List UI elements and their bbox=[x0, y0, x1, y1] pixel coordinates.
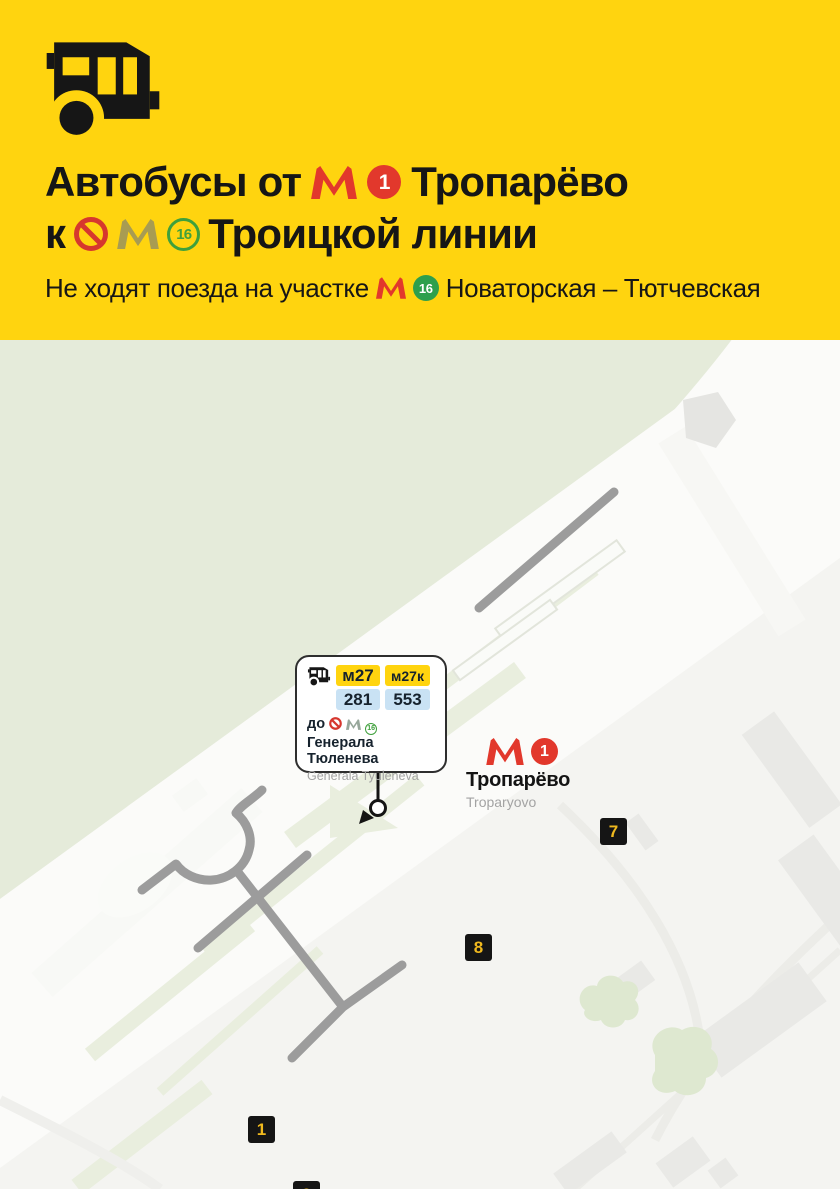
station-name: Тропарёво bbox=[466, 769, 570, 792]
route-7-8 bbox=[479, 492, 614, 608]
stop-marker-7: 7 bbox=[600, 818, 627, 845]
routes-callout: м27 м27к 281 553 до 16 Генерала Тюленева… bbox=[295, 655, 447, 773]
route-badge-281: 281 bbox=[336, 689, 380, 710]
line-16-outline-badge: 16 bbox=[167, 218, 200, 251]
line-1-badge: 1 bbox=[367, 165, 401, 199]
metro-m-olive-icon bbox=[117, 219, 159, 249]
metro-m-icon bbox=[311, 166, 357, 199]
metro-m-icon bbox=[486, 738, 524, 765]
stop-marker-1: 1 bbox=[248, 1116, 275, 1143]
title2-pre: к bbox=[45, 210, 65, 258]
subtitle-post: Новаторская – Тютчевская bbox=[446, 273, 761, 304]
dest-name: Генерала Тюленева bbox=[307, 735, 378, 768]
station-name-translit: Troparyovo bbox=[466, 794, 570, 810]
metro-m-gray-icon bbox=[346, 719, 361, 730]
poster-header: Автобусы от 1 Тропарёво к 16 Троицкой ли… bbox=[0, 0, 840, 340]
bus-icon bbox=[307, 666, 331, 686]
station-label: 1 Тропарёво Troparyovo bbox=[466, 738, 570, 810]
station-marker-circle bbox=[371, 801, 386, 816]
no-service-icon bbox=[329, 717, 342, 730]
bus-icon bbox=[43, 36, 163, 138]
title2-post: Троицкой линии bbox=[208, 210, 537, 258]
subtitle-pre: Не ходят поезда на участке bbox=[45, 273, 369, 304]
title1-post: Тропарёво bbox=[411, 158, 628, 206]
dest-prefix: до bbox=[307, 716, 325, 732]
no-service-icon bbox=[73, 216, 109, 252]
route-badge-553: 553 bbox=[385, 689, 430, 710]
poster-titles: Автобусы от 1 Тропарёво к 16 Троицкой ли… bbox=[45, 156, 760, 304]
metro-m-icon-small bbox=[376, 277, 406, 299]
stop-marker-3: 3 bbox=[293, 1181, 320, 1189]
callout-destination: до 16 Генерала Тюленева bbox=[307, 716, 436, 768]
title-line-1: Автобусы от 1 Тропарёво bbox=[45, 156, 760, 208]
subtitle: Не ходят поезда на участке 16 Новаторска… bbox=[45, 272, 760, 304]
route-badge-m27: м27 bbox=[336, 665, 380, 686]
title-line-2: к 16 Троицкой линии bbox=[45, 208, 760, 260]
route-badge-m27k: м27к bbox=[385, 665, 430, 686]
line-16-mini-badge: 16 bbox=[365, 723, 377, 735]
stop-marker-8: 8 bbox=[465, 934, 492, 961]
title1-pre: Автобусы от bbox=[45, 158, 301, 206]
line-1-badge: 1 bbox=[531, 738, 558, 765]
line-16-badge: 16 bbox=[413, 275, 439, 301]
callout-destination-translit: Generala Tyuleneva bbox=[307, 770, 436, 784]
